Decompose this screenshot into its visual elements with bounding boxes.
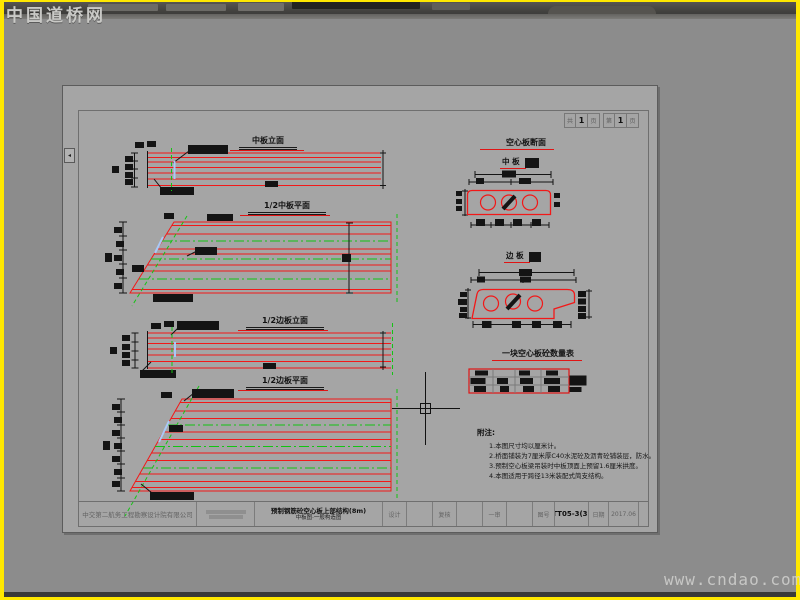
- note-line-4: 4.本图适用于跨径13米装配式简支结构。: [489, 470, 607, 480]
- yellow-border-left: [0, 0, 4, 600]
- site-watermark-brand: 中国道桥网: [6, 1, 106, 26]
- d4-edge-slab-plan: [103, 386, 397, 516]
- toolbar-strip: [0, 14, 800, 19]
- d1-title: 中板立面: [235, 136, 301, 146]
- window-title-text: [292, 1, 420, 9]
- site-watermark-url: www.cndao.com: [664, 570, 800, 589]
- title-block: 中交第二航务工程勘察设计院有限公司 预制钢筋砼空心板上部结构(8m) 中板图·一…: [78, 501, 649, 527]
- window-titlebar[interactable]: [0, 0, 800, 14]
- yellow-border-right: [796, 0, 800, 600]
- titlebar-text-fragment: [238, 3, 284, 11]
- date-value: 2017.06: [609, 502, 639, 526]
- table-title: 一块空心板砼数量表: [491, 349, 585, 359]
- edge-slab-cross-section: [458, 252, 592, 328]
- note-line-1: 1.本图尺寸均以厘米计。: [489, 440, 560, 450]
- page-current-value: 1: [615, 113, 627, 128]
- check-label: 复核: [433, 502, 457, 526]
- notes-heading: 附注:: [477, 427, 495, 438]
- d2-middle-slab-plan: [105, 213, 397, 306]
- page-label: 页: [627, 113, 639, 128]
- quantity-table: [469, 369, 587, 393]
- review-value-cell: [507, 502, 533, 526]
- edge-slab-label: 边 板: [506, 250, 524, 261]
- titlebar-text-fragment: [432, 3, 470, 10]
- yellow-border-top: [0, 0, 800, 2]
- date-label: 日期: [589, 502, 609, 526]
- titleblock-filler-cell: [639, 502, 648, 526]
- drawing-sheet-canvas[interactable]: ◂ 共 1 页 第 1 页: [62, 85, 658, 533]
- note-line-2: 2.桥面铺装为7厘米厚C40水泥砼及沥青砼铺装层，防水。: [489, 450, 655, 460]
- page-label: 共: [564, 113, 576, 128]
- review-label: 一审: [483, 502, 507, 526]
- check-value-cell: [457, 502, 483, 526]
- page-label: 第: [603, 113, 615, 128]
- project-title-cell: 预制钢筋砼空心板上部结构(8m) 中板图·一般构造图: [255, 502, 383, 526]
- d2-title: 1/2中板平面: [244, 201, 330, 211]
- figure-number-value: TT05-3(3): [555, 502, 589, 526]
- page-number-boxes: 共 1 页 第 1 页: [564, 113, 639, 128]
- cad-application-window: 中国道桥网 www.cndao.com ◂ 共 1 页 第 1 页: [0, 0, 800, 600]
- sections-title: 空心板断面: [491, 138, 561, 148]
- note-line-3: 3.预制空心板梁吊装时中板顶面上预留1.6厘米拱度。: [489, 460, 642, 470]
- stamp-cell: [197, 502, 255, 526]
- view-control-fragment[interactable]: ◂: [64, 148, 75, 163]
- page-label: 页: [588, 113, 600, 128]
- design-label: 设计: [383, 502, 407, 526]
- project-title-line2: 中板图·一般构造图: [296, 515, 342, 522]
- design-value-cell: [407, 502, 433, 526]
- crosshair-cursor: [392, 372, 460, 445]
- titlebar-text-fragment: [166, 4, 226, 11]
- d4-title: 1/2边板平面: [242, 376, 328, 386]
- mid-slab-label: 中 板: [502, 156, 520, 167]
- project-title-line1: 预制钢筋砼空心板上部结构(8m): [271, 507, 366, 515]
- d3-title: 1/2边板立面: [242, 316, 328, 326]
- company-name: 中交第二航务工程勘察设计院有限公司: [79, 502, 197, 526]
- page-total-value: 1: [576, 113, 588, 128]
- figure-number-label: 图号: [533, 502, 555, 526]
